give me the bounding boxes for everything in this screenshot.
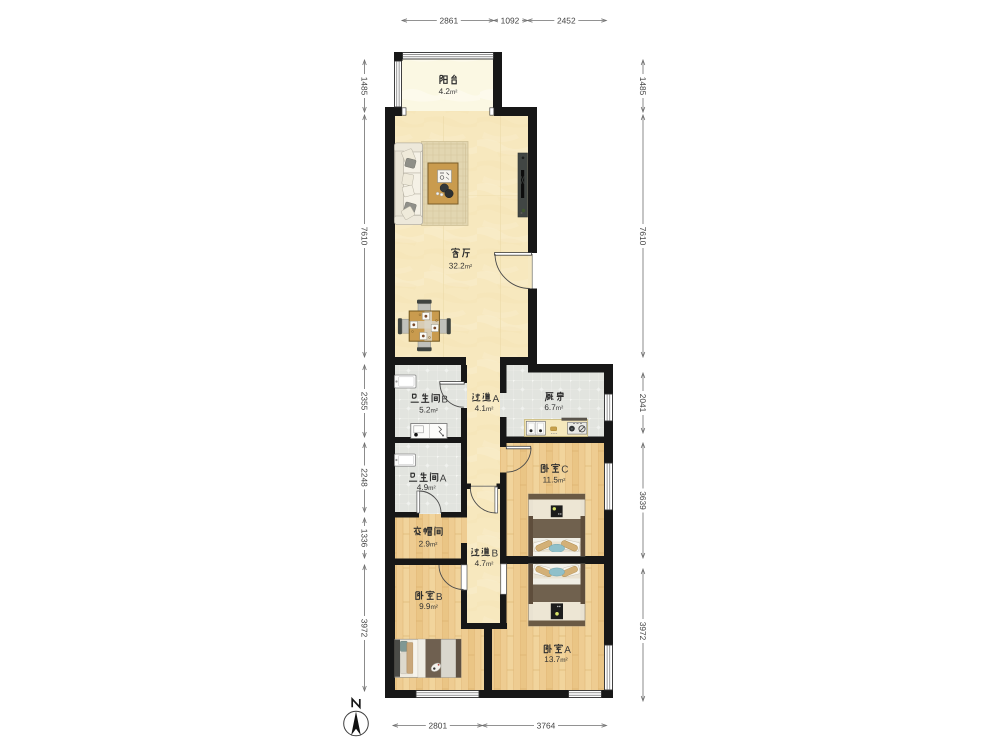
svg-text:2.9m²: 2.9m² (419, 539, 438, 548)
svg-text:4.2m²: 4.2m² (439, 87, 458, 96)
svg-text:1485: 1485 (638, 77, 648, 96)
svg-text:5.2m²: 5.2m² (419, 405, 438, 414)
svg-text:A: A (440, 473, 447, 484)
svg-text:B: B (441, 394, 448, 405)
svg-text:2801: 2801 (428, 720, 447, 730)
svg-text:A: A (493, 394, 500, 405)
svg-text:3972: 3972 (638, 622, 648, 641)
svg-text:4.7m²: 4.7m² (475, 559, 494, 568)
svg-text:B: B (436, 592, 443, 603)
svg-text:C: C (561, 465, 568, 476)
svg-text:A: A (564, 645, 571, 656)
svg-text:4.9m²: 4.9m² (417, 483, 436, 492)
svg-text:1485: 1485 (360, 77, 370, 96)
svg-text:2355: 2355 (360, 392, 370, 411)
svg-text:7610: 7610 (638, 227, 648, 246)
svg-text:3764: 3764 (537, 720, 556, 730)
svg-text:B: B (492, 549, 499, 560)
svg-text:1092: 1092 (501, 15, 520, 25)
svg-text:7610: 7610 (360, 227, 370, 246)
svg-text:1336: 1336 (360, 529, 370, 548)
svg-text:3639: 3639 (638, 491, 648, 510)
svg-text:11.5m²: 11.5m² (543, 476, 566, 485)
svg-text:3972: 3972 (360, 619, 370, 638)
svg-text:2041: 2041 (638, 394, 648, 413)
svg-text:2452: 2452 (557, 15, 576, 25)
svg-text:32.2m²: 32.2m² (449, 261, 472, 270)
svg-text:4.1m²: 4.1m² (475, 404, 494, 413)
svg-text:9.9m²: 9.9m² (419, 602, 438, 611)
svg-text:2861: 2861 (439, 15, 458, 25)
svg-text:6.7m²: 6.7m² (544, 403, 563, 412)
svg-text:2248: 2248 (360, 468, 370, 487)
svg-text:13.7m²: 13.7m² (544, 655, 567, 664)
